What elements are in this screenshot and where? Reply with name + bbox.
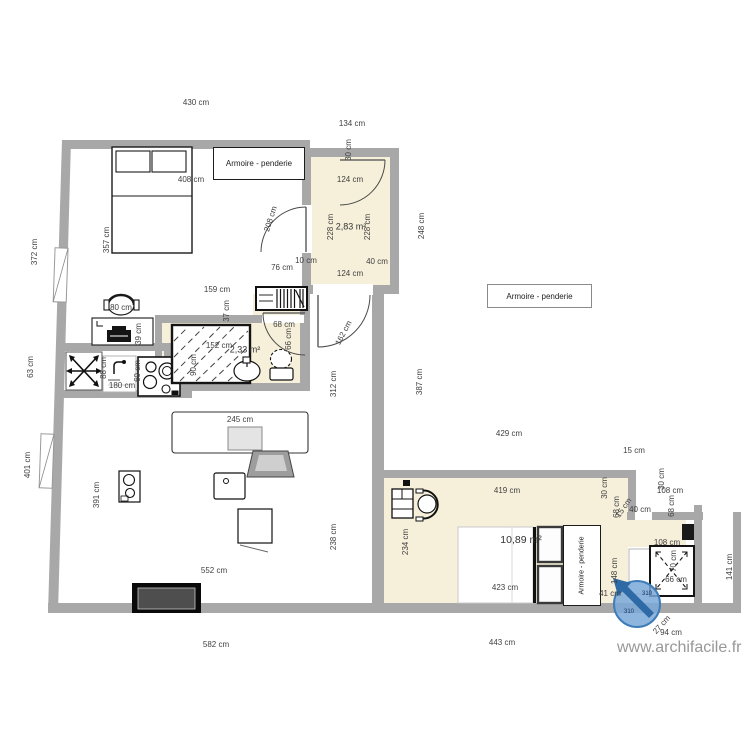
dim-label: 148 cm [611, 558, 619, 584]
monitor-icon [228, 427, 262, 450]
dim-label: 40 cm [629, 506, 651, 514]
dim-label: 40 cm [366, 258, 388, 266]
dim-label: 37 cm [223, 300, 231, 322]
dim-label: 429 cm [496, 430, 522, 438]
compass-bearing: 310 [624, 609, 634, 615]
dim-label: 70 cm [670, 550, 678, 572]
dim-label: 80 cm [110, 304, 132, 312]
dim-label: 41 cm [599, 590, 621, 598]
dim-label: 423 cm [492, 584, 518, 592]
dim-label: 68 cm [668, 495, 676, 517]
area-label: 2,83 m² [336, 223, 367, 232]
dim-label: 76 cm [271, 264, 293, 272]
appliance-icon [66, 352, 102, 390]
dim-label: 63 cm [27, 356, 35, 378]
dim-label: 152 cm [206, 342, 232, 350]
square-chair-icon [238, 509, 272, 552]
dim-label: 228 cm [364, 214, 372, 240]
dim-label: 387 cm [416, 369, 424, 395]
chair-front-icon [247, 451, 294, 477]
dim-label: 10 cm [295, 257, 317, 265]
sofa-icon [132, 583, 201, 613]
dim-label: 66 cm [285, 328, 293, 350]
compass-bearing: 310 [642, 591, 652, 597]
dim-label: 180 cm [109, 382, 135, 390]
dim-label: 141 cm [726, 554, 734, 580]
dim-label: 372 cm [31, 239, 39, 265]
watermark: www.archifacile.fr [617, 639, 741, 657]
wardrobe-label-box: Armoire - penderie [487, 284, 592, 308]
dim-label: 552 cm [201, 567, 227, 575]
door-panel [682, 524, 694, 540]
radiator-icon [119, 471, 140, 502]
dim-label: 90 cm [190, 354, 198, 376]
dim-label: 238 cm [330, 524, 338, 550]
dim-label: 228 cm [327, 214, 335, 240]
dim-label: 312 cm [330, 371, 338, 397]
desk-icon [92, 318, 153, 345]
dim-label: 108 cm [654, 539, 680, 547]
bed-icon [112, 147, 192, 253]
dim-label: 30 cm [345, 139, 353, 161]
area-label: 10,89 m² [500, 535, 541, 546]
dim-label: 391 cm [93, 482, 101, 508]
dim-label: 108 cm [657, 487, 683, 495]
dim-label: 134 cm [339, 120, 365, 128]
dim-label: 419 cm [494, 487, 520, 495]
armchair-icon [214, 473, 245, 499]
dim-label: 245 cm [227, 416, 253, 424]
window-icon [39, 434, 54, 488]
dim-label: 248 cm [418, 213, 426, 239]
dim-label: 443 cm [489, 639, 515, 647]
dim-label: 30 cm [601, 477, 609, 499]
area-label: 2,33 m² [230, 346, 261, 355]
dim-label: 39 cm [135, 323, 143, 345]
toilet-icon [270, 350, 293, 381]
dim-label: 66 cm [665, 576, 687, 584]
wardrobe-bedroom: Armoire - penderie [213, 147, 305, 180]
wardrobe-right: Armoire - penderie [563, 525, 601, 606]
dim-label: 159 cm [204, 286, 230, 294]
dim-label: 234 cm [402, 529, 410, 555]
dim-label: 124 cm [337, 176, 363, 184]
dim-label: 15 cm [623, 447, 645, 455]
bookshelf-icon [256, 287, 307, 310]
dim-label: 88 cm [100, 357, 108, 379]
dim-label: 60 cm [134, 360, 142, 382]
dim-label: 357 cm [103, 227, 111, 253]
dim-label: 94 cm [660, 629, 682, 637]
floorplan-page: Armoire - penderie Armoire - penderie Ar… [0, 0, 750, 750]
window-icon [53, 248, 68, 302]
dim-label: 430 cm [183, 99, 209, 107]
dim-label: 408 cm [178, 176, 204, 184]
dim-label: 124 cm [337, 270, 363, 278]
dim-label: 401 cm [24, 452, 32, 478]
floorplan-canvas [0, 0, 750, 750]
dim-label: 582 cm [203, 641, 229, 649]
